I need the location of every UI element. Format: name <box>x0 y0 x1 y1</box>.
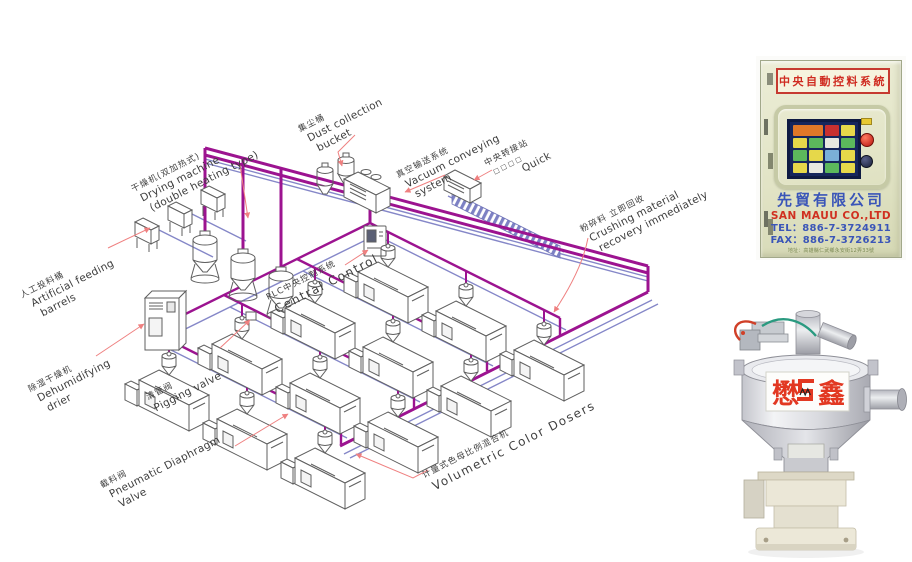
screen-cell <box>825 125 839 136</box>
dehumidifying-drier-unit <box>145 291 186 350</box>
brand-plate: 懋 鑫 <box>766 372 849 411</box>
hopper-dryer <box>229 249 257 301</box>
company-fax: FAX：886-7-3726213 <box>761 235 901 248</box>
yellow-indicator-led <box>861 118 872 125</box>
cabinet-vent <box>768 153 773 169</box>
screen-cell <box>841 150 855 161</box>
central-feeding-system-diagram: 人工投料桶 Artificial feeding barrels 干燥机(双加热… <box>0 0 760 562</box>
company-name-zh: 先貿有限公司 <box>761 191 901 210</box>
screen-cell <box>841 125 855 136</box>
screen-cell <box>841 138 855 149</box>
injection-machine <box>281 430 365 509</box>
hopper-loader-photo: 懋 鑫 <box>700 298 912 562</box>
injection-machine <box>422 283 506 362</box>
inlet-pipe <box>796 311 820 355</box>
touch-panel <box>774 105 890 189</box>
label-quick: Quick <box>520 150 554 175</box>
base-pedestal <box>744 472 856 550</box>
pigging-valve-glyph <box>246 312 256 320</box>
machine-grid <box>125 244 584 509</box>
cabinet-hinge <box>764 119 768 135</box>
cabinet-company-block: 先貿有限公司 SAN MAUU CO.,LTD TEL：886-7-372491… <box>761 191 901 254</box>
control-cabinet-photo: 中央自動控料系統 <box>756 56 906 260</box>
plc-control-box <box>364 226 386 256</box>
brand-char-left: 懋 <box>772 379 799 410</box>
cabinet-header-text: 中央自動控料系統 <box>779 73 887 89</box>
power-button[interactable] <box>860 155 873 168</box>
cabinet-header-plaque: 中央自動控料系統 <box>776 68 890 94</box>
brand-char-right: 鑫 <box>818 378 845 410</box>
label-artificial-feeding: 人工投料桶 Artificial feeding barrels <box>18 247 122 324</box>
screen-cell <box>793 150 807 161</box>
hopper-dryer <box>191 231 219 283</box>
cone-clamp <box>774 448 782 460</box>
injection-machine <box>349 319 433 398</box>
label-dehumidifying: 除湿干燥机 Dehumidifying drier <box>26 347 118 418</box>
injection-machine <box>203 391 287 470</box>
page: 人工投料桶 Artificial feeding barrels 干燥机(双加热… <box>0 0 912 562</box>
cone-clamp <box>830 448 838 460</box>
bolt <box>844 538 849 543</box>
screen-cell <box>809 163 823 174</box>
company-name-en: SAN MAUU CO.,LTD <box>761 210 901 223</box>
red-pilot-light[interactable] <box>860 133 874 147</box>
label-crushing-recovery: 粉碎料 立即回收 Crushing material recovery imme… <box>578 166 710 257</box>
feeding-barrel <box>168 202 192 236</box>
injection-machine <box>500 322 584 401</box>
company-address: 地址：高雄縣仁武鄉永安街12弄33號 <box>761 248 901 254</box>
injection-machine <box>276 355 360 434</box>
screen-cell <box>809 150 823 161</box>
label-text: Quick <box>520 150 554 175</box>
screen-cell <box>825 138 839 149</box>
screen-cell <box>825 150 839 161</box>
injection-machine <box>354 394 438 473</box>
bolt <box>764 538 769 543</box>
lid-clamp <box>868 360 878 375</box>
company-tel: TEL：886-7-3724911 <box>761 223 901 236</box>
feeding-barrel <box>135 218 159 252</box>
screen-cell <box>793 163 807 174</box>
vacuum-pump-station <box>344 170 390 214</box>
touchscreen[interactable] <box>787 119 861 179</box>
screen-cell <box>809 138 823 149</box>
label-text: Pneumatic Diaphragm <box>107 434 222 500</box>
screen-cell <box>793 125 823 136</box>
base-side-box <box>744 480 764 518</box>
cabinet-lock-icon <box>767 73 773 85</box>
screen-cell <box>825 163 839 174</box>
side-discharge-pipe <box>864 387 907 412</box>
injection-machine <box>427 358 511 437</box>
screen-cell <box>793 138 807 149</box>
side-stub-pipe <box>818 323 858 351</box>
cabinet-body: 中央自動控料系統 <box>760 60 902 258</box>
lid-clamp <box>734 360 744 375</box>
screen-cell <box>841 163 855 174</box>
